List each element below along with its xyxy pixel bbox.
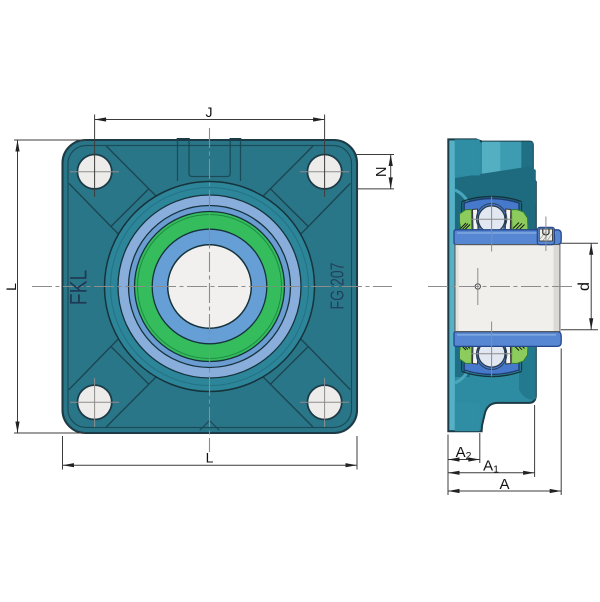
svg-text:FG 207: FG 207 bbox=[328, 263, 348, 310]
svg-text:J: J bbox=[206, 104, 213, 120]
svg-text:A: A bbox=[499, 476, 509, 493]
svg-text:d: d bbox=[576, 282, 593, 291]
svg-text:N: N bbox=[374, 166, 390, 176]
svg-text:L: L bbox=[206, 450, 214, 466]
svg-text:FKL: FKL bbox=[66, 270, 93, 306]
svg-text:L: L bbox=[3, 283, 19, 291]
